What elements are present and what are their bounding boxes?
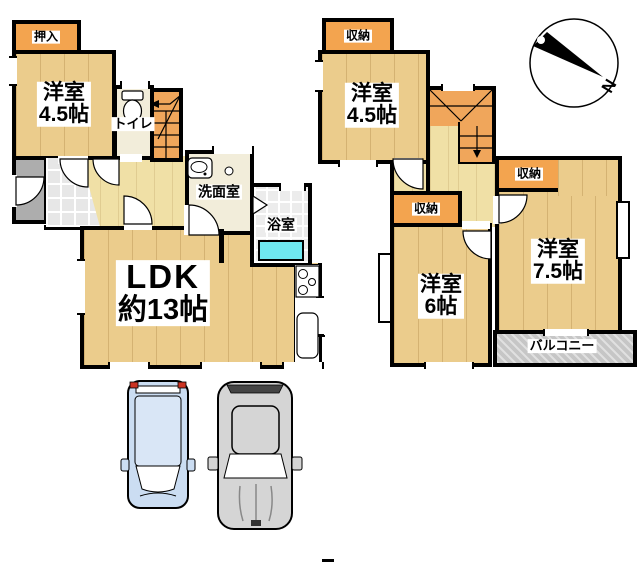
car1-windshield xyxy=(136,466,180,492)
label-toilet: トイレ xyxy=(111,117,154,131)
window-ldk-bottom-2 xyxy=(200,362,262,369)
label-yoshitsu45-2f-line1: 洋室 xyxy=(347,83,397,105)
label-storage-mid: 収納 xyxy=(412,203,440,216)
car-sedan-gray xyxy=(208,382,302,529)
car2-windshield xyxy=(224,454,287,478)
car1-rear-window xyxy=(136,386,180,393)
entrance-genkan xyxy=(12,156,48,224)
car1-hood-line xyxy=(140,493,176,496)
label-bath: 浴室 xyxy=(265,218,297,233)
label-yoshitsu75-line1: 洋室 xyxy=(533,239,583,261)
label-yoshitsu45-2f: 洋室 4.5帖 xyxy=(345,83,399,128)
car1-taillight-left-icon xyxy=(130,382,138,388)
label-yoshitsu45-1f-line2: 4.5帖 xyxy=(39,104,89,126)
car2-roof xyxy=(232,406,279,454)
compass: N xyxy=(530,19,620,107)
compass-circle xyxy=(530,19,618,107)
label-yoshitsu75-line2: 7.5帖 xyxy=(533,261,583,283)
window-ldk-bottom-1 xyxy=(108,362,150,369)
door-gap-senmen xyxy=(184,205,192,235)
window-stairs-2f-top xyxy=(441,84,475,91)
car1-roof xyxy=(135,396,181,466)
label-storage-right: 収納 xyxy=(515,168,543,181)
door-gap-toilet xyxy=(120,154,142,162)
label-yoshitsu6-line2: 6帖 xyxy=(420,296,462,318)
window-toilet-top xyxy=(120,81,150,89)
car2-front-detail xyxy=(251,520,261,526)
label-yoshitsu75: 洋室 7.5帖 xyxy=(531,239,585,284)
door-gap-yoshitsu75 xyxy=(493,196,501,224)
label-yoshitsu45-1f: 洋室 4.5帖 xyxy=(37,82,91,127)
label-yoshitsu45-1f-line1: 洋室 xyxy=(39,82,89,104)
car1-mirror-right xyxy=(187,459,195,471)
stairs-2f-flight xyxy=(458,122,496,164)
door-gap-yoshitsu6 xyxy=(462,221,490,229)
compass-needle-icon xyxy=(533,32,603,77)
window-bath-top xyxy=(279,183,306,191)
bay-window-yoshitsu6 xyxy=(378,253,392,323)
bay-window-yoshitsu75 xyxy=(616,201,630,259)
car2-mirror-right xyxy=(292,457,302,470)
label-oshiire: 押入 xyxy=(32,31,60,44)
window-yoshitsu-1f-left xyxy=(9,56,17,86)
label-ldk-line1: LDK xyxy=(118,260,208,295)
compass-north-label: N xyxy=(597,76,620,96)
window-yoshitsu6-bottom xyxy=(424,362,474,369)
car2-hood-lines xyxy=(239,484,272,523)
label-storage-top: 収納 xyxy=(344,30,372,43)
window-ldk-bottom-3 xyxy=(282,362,324,369)
window-kitchen-right xyxy=(316,296,324,336)
door-gap-ldk xyxy=(124,222,152,230)
compass-needle-notch xyxy=(537,36,545,44)
door-gap-yoshitsu-1f xyxy=(58,156,88,164)
car1-mirror-left xyxy=(121,459,129,471)
front-door-gap xyxy=(9,175,17,207)
window-yoshitsu45-2f-left xyxy=(315,60,323,92)
label-yoshitsu45-2f-line2: 4.5帖 xyxy=(347,105,397,127)
window-senmen-top xyxy=(212,146,254,154)
label-ldk-line2: 約13帖 xyxy=(118,295,208,326)
outline-patch xyxy=(312,219,336,263)
label-yoshitsu6: 洋室 6帖 xyxy=(418,274,464,319)
window-ldk-left xyxy=(77,259,85,315)
stairs-1f xyxy=(150,88,183,162)
label-balcony: バルコニー xyxy=(528,339,597,353)
label-ldk: LDK 約13帖 xyxy=(116,260,210,326)
window-yoshitsu45-2f-bottom xyxy=(338,160,378,167)
room-yoshitsu-7_5-ext xyxy=(558,156,622,196)
floor-plan-image: N 押入 洋室 4.5帖 xyxy=(0,0,639,570)
car2-mirror-left xyxy=(208,457,218,470)
label-senmen: 洗面室 xyxy=(196,185,242,200)
bottom-dash-mark xyxy=(322,559,334,562)
wall-stub-kitchen xyxy=(219,229,224,263)
bathtub xyxy=(258,240,304,261)
hallway-2f-c xyxy=(458,158,496,227)
car2-rear-window xyxy=(227,385,283,393)
label-yoshitsu6-line1: 洋室 xyxy=(420,274,462,296)
window-yoshitsu75-balcony xyxy=(543,329,589,336)
car1-taillight-right-icon xyxy=(178,382,186,388)
door-gap-yoshitsu45-2f xyxy=(394,158,422,166)
car-compact-blue xyxy=(121,381,195,508)
stairs-2f-winder xyxy=(426,86,496,126)
